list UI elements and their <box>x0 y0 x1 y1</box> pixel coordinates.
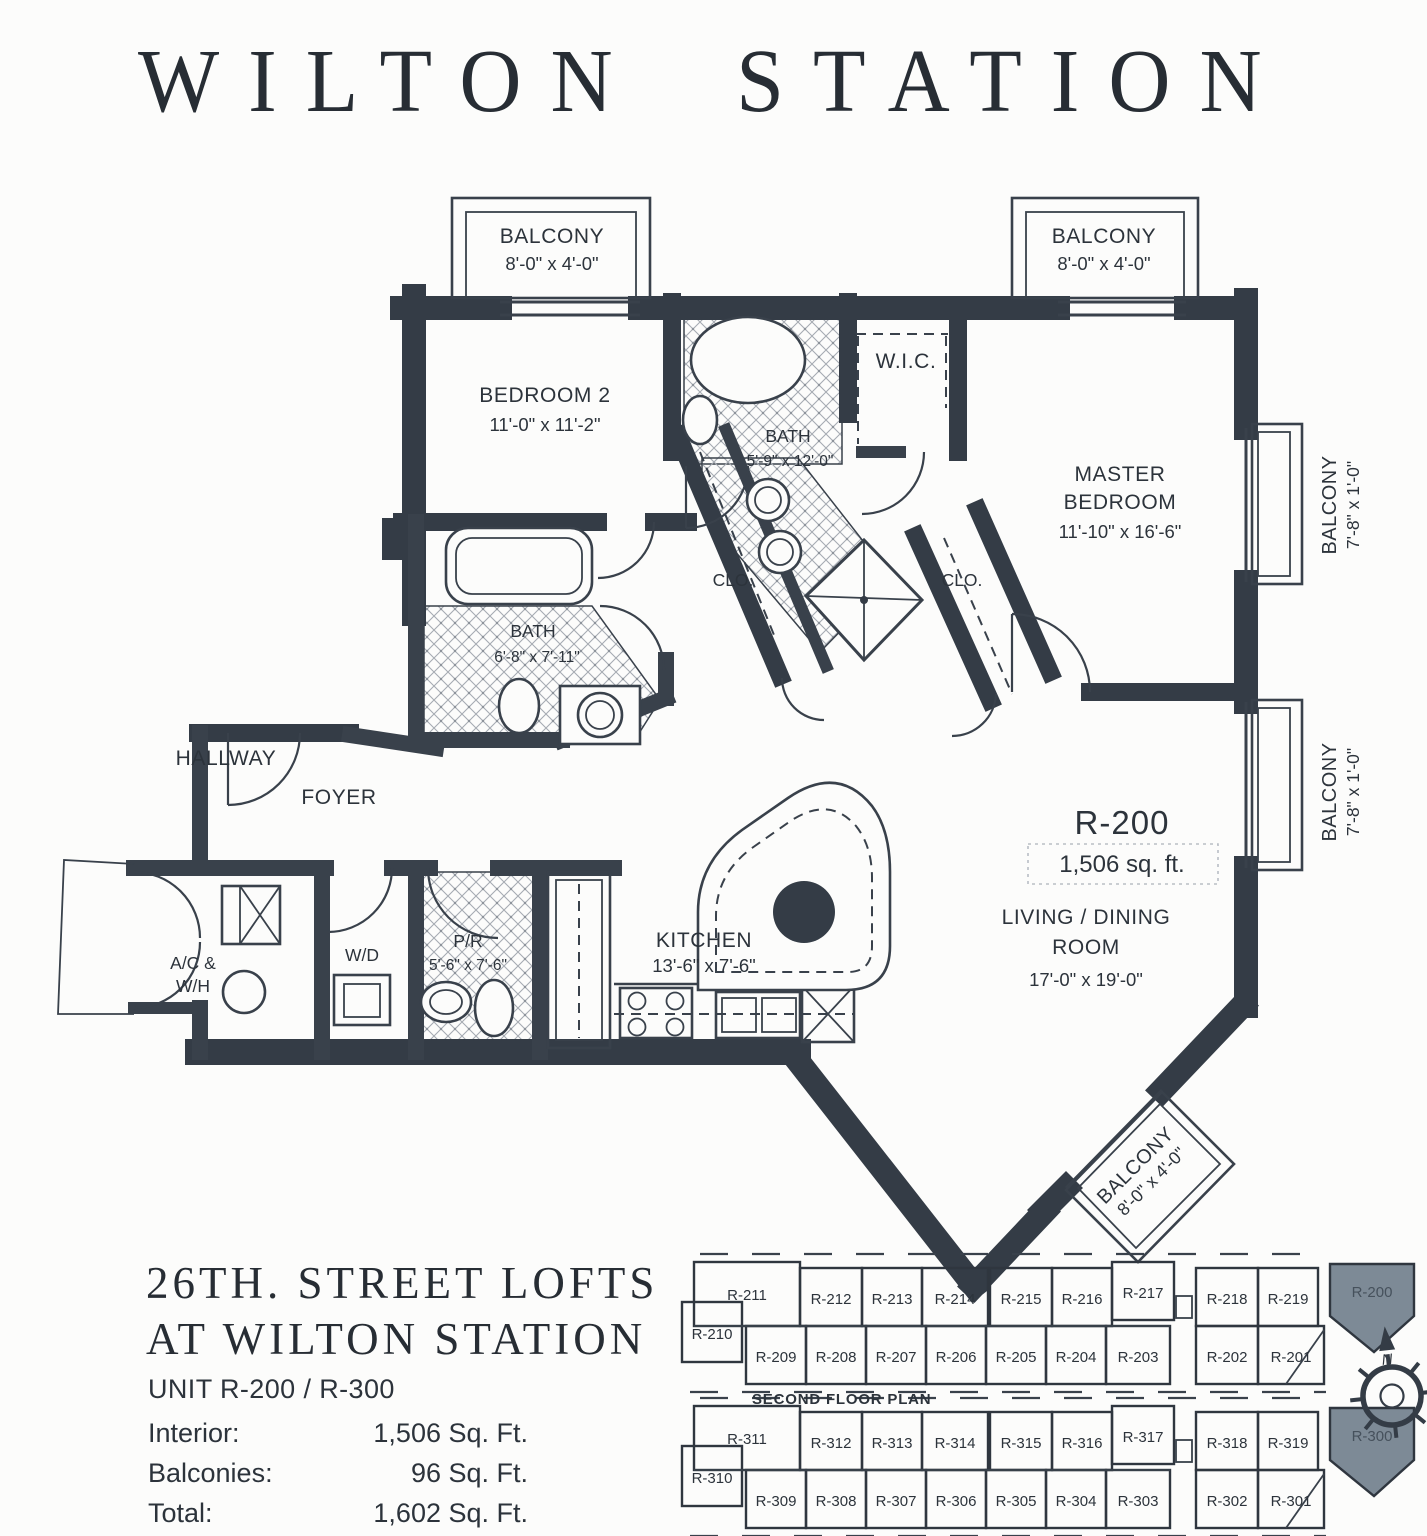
unit-cell-label: R-316 <box>1062 1435 1103 1452</box>
unit-area: 1,506 sq. ft. <box>1059 851 1184 878</box>
balcony-ru-label: BALCONY <box>1319 455 1341 554</box>
balcony-right-lower-label-group: BALCONY 7'-8" x 1'-0" <box>1319 742 1363 841</box>
stat-value: 1,602 Sq. Ft. <box>328 1498 528 1529</box>
vanity-sink-2 <box>759 531 801 573</box>
closet2-label: CLO. <box>942 570 983 590</box>
unit-cell-label: R-317 <box>1123 1429 1164 1446</box>
footer-title-line1: 26TH. STREET LOFTS <box>146 1256 658 1312</box>
unit-cell-label: R-314 <box>935 1435 976 1452</box>
balcony-tr-dims: 8'-0" x 4'-0" <box>1057 253 1150 274</box>
unit-cell-label: R-218 <box>1207 1291 1248 1308</box>
unit-cell-label: R-208 <box>816 1349 857 1366</box>
kitchen-counter <box>614 984 854 1042</box>
unit-cell-label: R-215 <box>1001 1291 1042 1308</box>
unit-cell-highlight: R-300 <box>1352 1428 1393 1445</box>
unit-cell-label: R-307 <box>876 1493 917 1510</box>
keyplan-second-labels: R-211 R-212 R-213 R-214 R-215 R-216 R-21… <box>692 1284 1393 1408</box>
stat-row-total: Total: 1,602 Sq. Ft. <box>148 1498 528 1529</box>
unit-cell-label: R-301 <box>1271 1493 1312 1510</box>
master-bath-label: BATH <box>765 426 810 446</box>
balcony-rl-label: BALCONY <box>1319 742 1341 841</box>
unit-cell-label: R-313 <box>872 1435 913 1452</box>
keyplan-strip-shapes <box>682 1254 1414 1392</box>
toilet-bath2 <box>499 679 539 733</box>
pantry-closet <box>548 872 610 1048</box>
floorplan-page: WILTON STATION <box>0 0 1427 1536</box>
wd-label: W/D <box>345 945 379 965</box>
master-bath-dims: 5'-9" x 12'-0" <box>747 453 834 470</box>
unit-cell-label: R-312 <box>811 1435 852 1452</box>
living-dims: 17'-0" x 19'-0" <box>1029 969 1143 990</box>
bath2-label: BATH <box>510 621 555 641</box>
stat-value: 1,506 Sq. Ft. <box>328 1418 528 1449</box>
unit-cell-label: R-305 <box>996 1493 1037 1510</box>
unit-cell-label: R-213 <box>872 1291 913 1308</box>
wic-label: W.I.C. <box>876 350 937 373</box>
stat-label: Total: <box>148 1498 328 1529</box>
unit-cell-label: R-311 <box>727 1431 767 1448</box>
balcony-rl-dims: 7'-8" x 1'-0" <box>1343 748 1363 836</box>
unit-cell-label: R-216 <box>1062 1291 1103 1308</box>
unit-cell-highlight: R-200 <box>1352 1284 1393 1301</box>
stat-label: Interior: <box>148 1418 328 1449</box>
master-label-2: BEDROOM <box>1064 491 1177 514</box>
unit-cell-label: R-201 <box>1271 1349 1312 1366</box>
balcony-tl-label: BALCONY <box>500 225 605 248</box>
unit-cell-label: R-205 <box>996 1349 1037 1366</box>
sink-powder <box>421 982 471 1022</box>
ac-unit <box>222 886 280 944</box>
stat-row-balconies: Balconies: 96 Sq. Ft. <box>148 1458 528 1489</box>
kitchen-dims: 13'-6" x 7'-6" <box>652 955 756 976</box>
powder-label: P/R <box>453 931 482 951</box>
entry-stoop <box>58 860 134 1014</box>
footer-title-line2: AT WILTON STATION <box>146 1312 658 1368</box>
stat-value: 96 Sq. Ft. <box>328 1458 528 1489</box>
unit-cell-label: R-204 <box>1056 1349 1097 1366</box>
stat-label: Balconies: <box>148 1458 328 1489</box>
hallway-label: HALLWAY <box>176 747 277 770</box>
unit-cell-label: R-309 <box>756 1493 797 1510</box>
unit-cell-label: R-219 <box>1268 1291 1309 1308</box>
unit-cell-label: R-214 <box>935 1291 976 1308</box>
vanity-bath2 <box>560 686 640 744</box>
unit-number: R-200 <box>1075 804 1170 841</box>
unit-cell-label: R-308 <box>816 1493 857 1510</box>
balcony-br-label-group: BALCONY 8'-0" x 4'-0" <box>1093 1123 1193 1223</box>
unit-cell-label: R-318 <box>1207 1435 1248 1452</box>
bedroom2-dims: 11'-0" x 11'-2" <box>489 414 600 435</box>
kitchen-label: KITCHEN <box>656 929 752 952</box>
keyplan-third-labels: R-311 R-312 R-313 R-314 R-315 R-316 R-31… <box>692 1428 1393 1536</box>
water-heater <box>223 971 265 1013</box>
ac-wh-label-1: A/C & <box>170 953 216 973</box>
unit-cell-label: R-203 <box>1118 1349 1159 1366</box>
unit-cell-label: R-310 <box>692 1470 733 1487</box>
unit-cell-label: R-217 <box>1123 1285 1164 1302</box>
living-label-2: ROOM <box>1052 936 1120 959</box>
unit-cell-label: R-209 <box>756 1349 797 1366</box>
balcony-ru-dims: 7'-8" x 1'-0" <box>1343 461 1363 549</box>
unit-cell-label: R-211 <box>727 1287 767 1304</box>
unit-cell-label: R-302 <box>1207 1493 1248 1510</box>
keyplan-second-caption: SECOND FLOOR PLAN <box>752 1391 931 1408</box>
bedroom2-label: BEDROOM 2 <box>479 384 610 407</box>
balcony-right-upper-label-group: BALCONY 7'-8" x 1'-0" <box>1319 455 1363 554</box>
bath2-dims: 6'-8" x 7'-11" <box>494 649 580 666</box>
tub-master <box>691 317 805 403</box>
footer-unit-line: UNIT R-200 / R-300 <box>148 1374 395 1405</box>
unit-cell-label: R-306 <box>936 1493 977 1510</box>
master-label-1: MASTER <box>1074 463 1165 486</box>
unit-cell-label: R-206 <box>936 1349 977 1366</box>
keyplan-strip-third <box>682 1398 1414 1536</box>
sink-master <box>683 396 717 444</box>
powder-dims: 5'-6" x 7'-6" <box>429 957 507 974</box>
unit-cell-label: R-202 <box>1207 1349 1248 1366</box>
footer-title: 26TH. STREET LOFTS AT WILTON STATION <box>146 1256 658 1368</box>
living-label-1: LIVING / DINING <box>1002 906 1171 929</box>
unit-cell-label: R-212 <box>811 1291 852 1308</box>
unit-cell-label: R-207 <box>876 1349 917 1366</box>
closet1-label: CLO. <box>713 570 754 590</box>
foyer-label: FOYER <box>301 786 376 809</box>
stat-row-interior: Interior: 1,506 Sq. Ft. <box>148 1418 528 1449</box>
unit-cell-label: R-319 <box>1268 1435 1309 1452</box>
ac-wh-label-2: W/H <box>176 976 210 996</box>
unit-cell-label: R-303 <box>1118 1493 1159 1510</box>
master-dims: 11'-10" x 16'-6" <box>1059 521 1182 542</box>
unit-cell-label: R-304 <box>1056 1493 1097 1510</box>
vanity-sink-1 <box>747 479 789 521</box>
toilet-powder <box>475 980 513 1036</box>
balcony-tl-dims: 8'-0" x 4'-0" <box>505 253 598 274</box>
unit-cell-label: R-210 <box>692 1326 733 1343</box>
balcony-tr-label: BALCONY <box>1052 225 1157 248</box>
unit-cell-label: R-315 <box>1001 1435 1042 1452</box>
area-stats: Interior: 1,506 Sq. Ft. Balconies: 96 Sq… <box>148 1418 528 1536</box>
bar-sink <box>773 881 835 943</box>
